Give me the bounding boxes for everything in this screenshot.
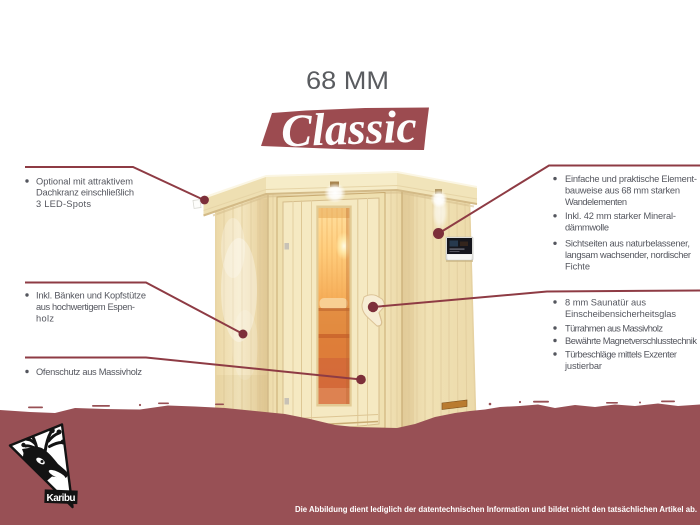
svg-text:Die Abbildung dient lediglich: Die Abbildung dient lediglich der datent… [295, 505, 697, 514]
svg-text:Einfache und praktische Elemen: Einfache und praktische Element- [565, 174, 697, 184]
svg-text:Einscheibensicherheitsglas: Einscheibensicherheitsglas [565, 309, 676, 319]
svg-text:bauweise aus 68 mm starken: bauweise aus 68 mm starken [565, 185, 680, 195]
svg-text:dämmwolle: dämmwolle [565, 223, 609, 233]
svg-text:Karibu: Karibu [47, 493, 76, 504]
svg-text:langsam wachsender, nordischer: langsam wachsender, nordischer [565, 250, 691, 260]
svg-text:Optional mit attraktivem: Optional mit attraktivem [36, 176, 133, 186]
svg-text:Wandelementen: Wandelementen [565, 197, 627, 207]
svg-text:Ofenschutz aus Massivholz: Ofenschutz aus Massivholz [36, 367, 142, 377]
svg-text:Türbeschläge mittels Exzenter: Türbeschläge mittels Exzenter [565, 349, 677, 359]
svg-text:Inkl. Bänken und Kopfstütze: Inkl. Bänken und Kopfstütze [36, 290, 146, 300]
svg-text:Sichtseiten aus naturbelassene: Sichtseiten aus naturbelassener, [565, 239, 690, 249]
svg-text:Türrahmen aus Massivholz: Türrahmen aus Massivholz [565, 323, 663, 333]
svg-text:holz: holz [36, 313, 54, 323]
svg-text:justierbar: justierbar [564, 361, 602, 371]
svg-text:aus hochwertigem Espen-: aus hochwertigem Espen- [36, 302, 135, 312]
svg-text:3 LED-Spots: 3 LED-Spots [36, 199, 91, 209]
svg-text:Inkl. 42 mm starker Mineral-: Inkl. 42 mm starker Mineral- [565, 211, 676, 221]
svg-text:68 MM: 68 MM [306, 67, 389, 95]
svg-text:8 mm Saunatür aus: 8 mm Saunatür aus [565, 297, 646, 307]
svg-text:Bewährte Magnetverschlusstechn: Bewährte Magnetverschlusstechnik [565, 336, 697, 346]
svg-text:Classic: Classic [280, 101, 417, 157]
svg-text:Dachkranz einschließlich: Dachkranz einschließlich [36, 188, 134, 198]
svg-text:Fichte: Fichte [565, 262, 590, 272]
